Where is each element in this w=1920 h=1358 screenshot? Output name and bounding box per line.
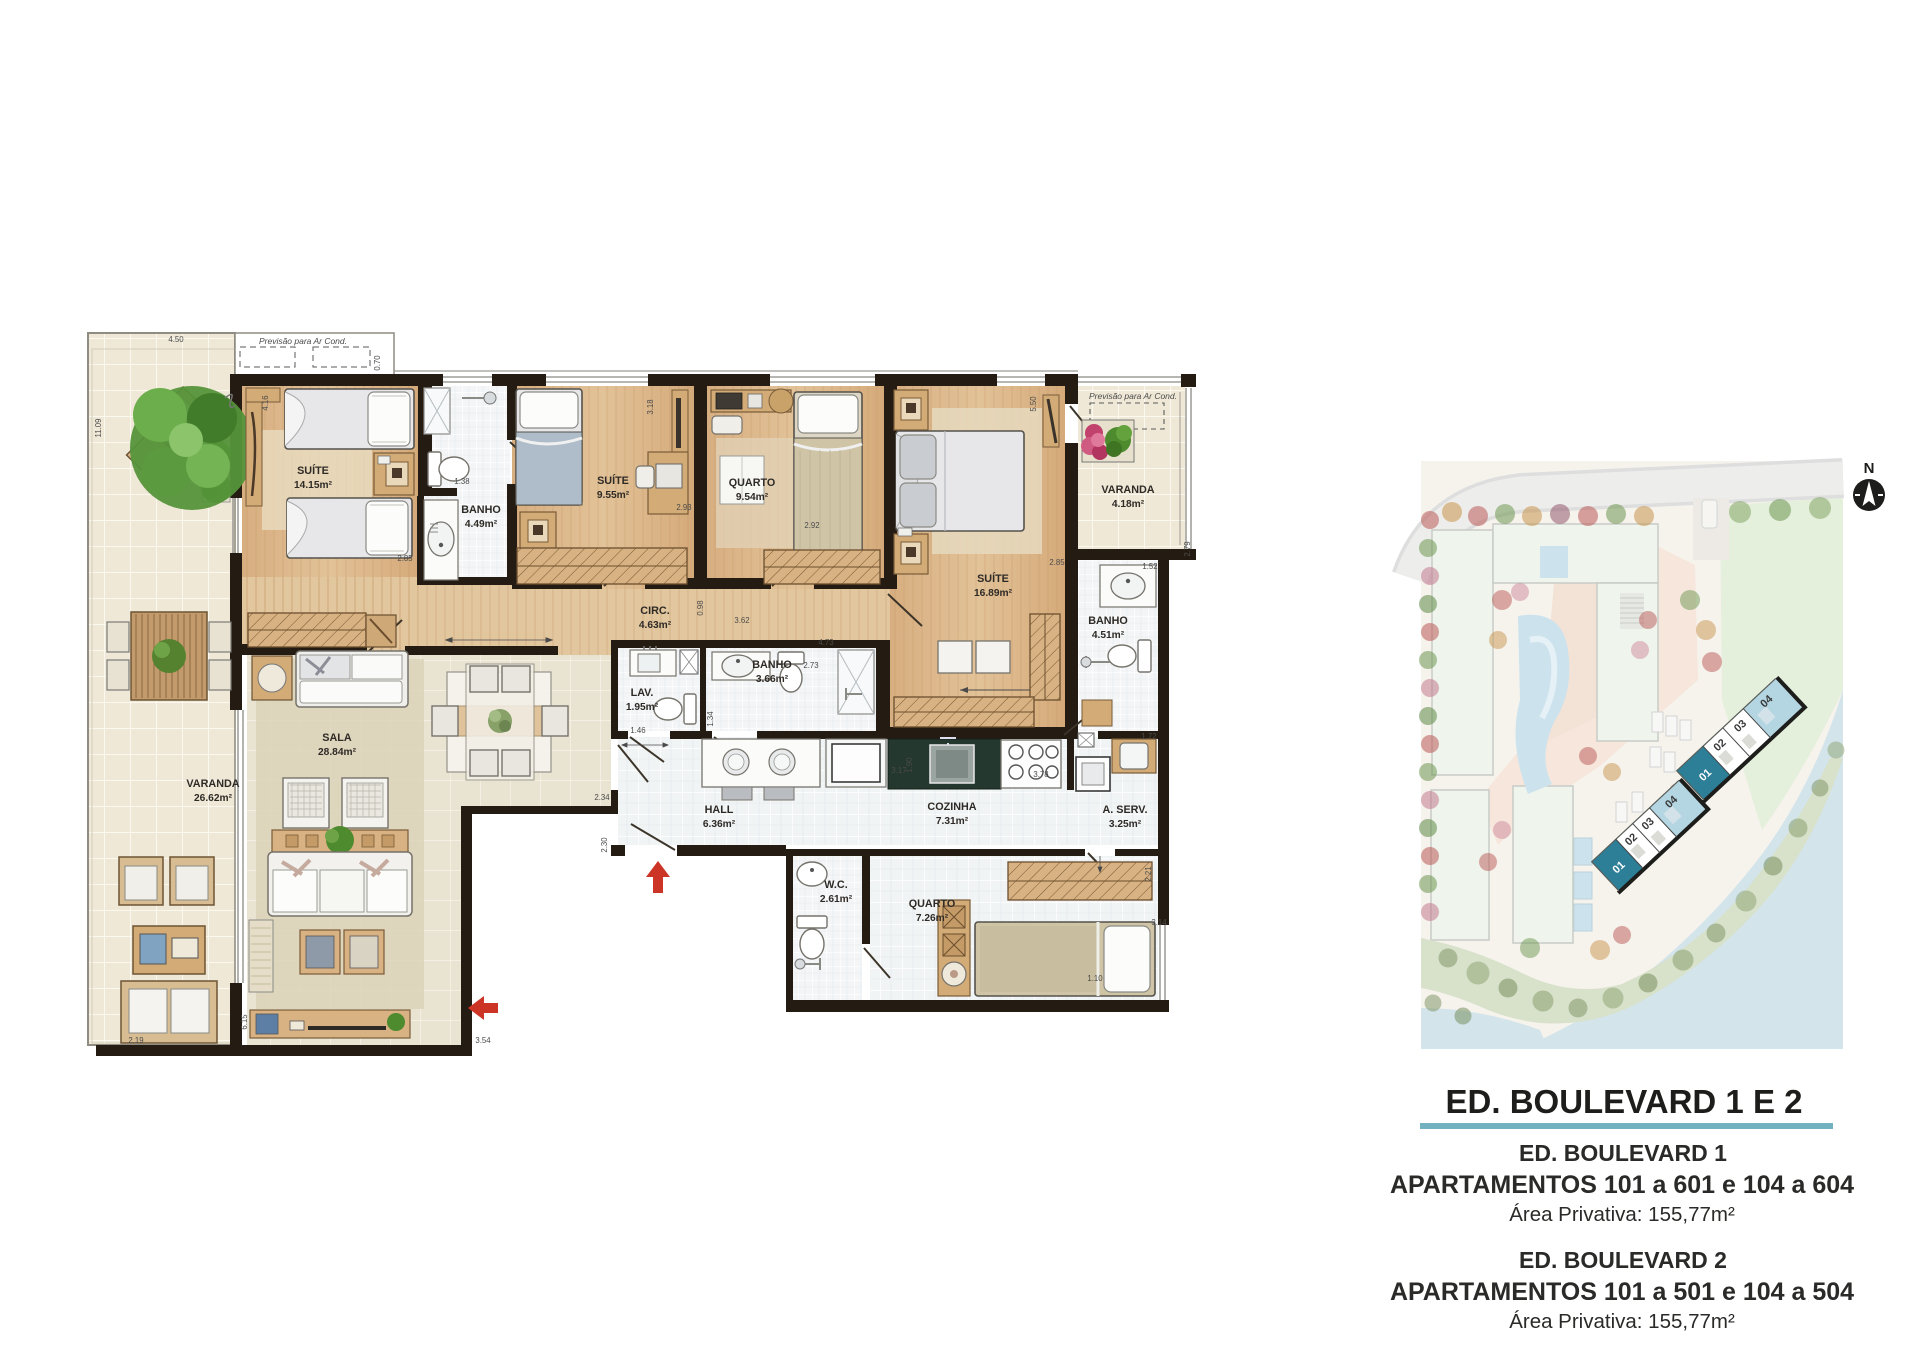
svg-text:5.50: 5.50	[1029, 396, 1038, 412]
svg-text:Previsão para Ar Cond.: Previsão para Ar Cond.	[259, 336, 347, 346]
svg-text:VARANDA: VARANDA	[1101, 484, 1154, 496]
svg-text:2.19: 2.19	[128, 1036, 143, 1045]
svg-text:1.10: 1.10	[1087, 974, 1103, 983]
svg-text:6.15: 6.15	[240, 1014, 249, 1030]
svg-text:3.54: 3.54	[475, 1036, 491, 1045]
svg-text:BANHO: BANHO	[752, 659, 792, 671]
svg-text:28.84m²: 28.84m²	[318, 747, 357, 758]
svg-text:COZINHA: COZINHA	[927, 801, 976, 813]
svg-text:SALA: SALA	[322, 732, 352, 744]
svg-text:0.98: 0.98	[696, 600, 705, 615]
svg-text:LAV.: LAV.	[631, 687, 654, 699]
svg-text:CIRC.: CIRC.	[640, 605, 669, 617]
svg-text:4.50: 4.50	[168, 335, 184, 344]
svg-text:7.31m²: 7.31m²	[936, 816, 969, 827]
svg-text:1.90: 1.90	[905, 757, 914, 773]
svg-text:N: N	[1864, 460, 1875, 477]
svg-text:QUARTO: QUARTO	[729, 477, 776, 489]
svg-text:2.79: 2.79	[1183, 541, 1192, 556]
svg-text:ED. BOULEVARD 1 E 2: ED. BOULEVARD 1 E 2	[1446, 1083, 1803, 1120]
svg-text:3.18: 3.18	[646, 399, 655, 414]
svg-text:SUÍTE: SUÍTE	[977, 572, 1009, 585]
svg-text:W.C.: W.C.	[824, 879, 847, 891]
svg-text:3.25m²: 3.25m²	[1109, 819, 1142, 830]
svg-text:ED. BOULEVARD 2: ED. BOULEVARD 2	[1519, 1247, 1727, 1273]
svg-text:4.51m²: 4.51m²	[1092, 630, 1125, 641]
svg-text:2.30: 2.30	[600, 837, 609, 853]
svg-text:2.85: 2.85	[1049, 558, 1065, 567]
svg-text:SUÍTE: SUÍTE	[297, 464, 329, 477]
svg-text:16.89m²: 16.89m²	[974, 588, 1013, 599]
svg-text:ED. BOULEVARD 1: ED. BOULEVARD 1	[1519, 1140, 1727, 1166]
svg-text:4.49m²: 4.49m²	[465, 519, 498, 530]
svg-text:2.92: 2.92	[804, 521, 819, 530]
svg-text:2.34: 2.34	[594, 793, 610, 802]
svg-text:1.52: 1.52	[1142, 562, 1157, 571]
svg-text:7.26m²: 7.26m²	[916, 913, 949, 924]
svg-text:VARANDA: VARANDA	[186, 778, 239, 790]
svg-text:3.66m²: 3.66m²	[756, 674, 789, 685]
svg-text:APARTAMENTOS 101 a 501 e 104 a: APARTAMENTOS 101 a 501 e 104 a 504	[1390, 1278, 1854, 1306]
svg-text:SUÍTE: SUÍTE	[597, 474, 629, 487]
svg-text:3.14: 3.14	[1151, 918, 1167, 927]
svg-text:1.72: 1.72	[1141, 732, 1156, 741]
svg-text:4.63m²: 4.63m²	[639, 620, 672, 631]
svg-text:9.54m²: 9.54m²	[736, 492, 769, 503]
svg-text:BANHO: BANHO	[461, 504, 501, 516]
svg-text:2.93: 2.93	[676, 503, 691, 512]
svg-text:A. SERV.: A. SERV.	[1102, 804, 1147, 816]
svg-text:1.95m²: 1.95m²	[626, 702, 659, 713]
svg-text:BANHO: BANHO	[1088, 615, 1128, 627]
svg-text:14.15m²: 14.15m²	[294, 480, 333, 491]
svg-text:4.18m²: 4.18m²	[1112, 499, 1145, 510]
svg-text:11.09: 11.09	[94, 419, 103, 438]
svg-text:1.38: 1.38	[454, 477, 469, 486]
svg-text:2.21: 2.21	[1144, 866, 1153, 881]
svg-text:0.70: 0.70	[373, 355, 382, 371]
svg-text:HALL: HALL	[705, 804, 734, 816]
svg-text:26.62m²: 26.62m²	[194, 793, 233, 804]
svg-text:1.46: 1.46	[630, 726, 645, 735]
svg-text:APARTAMENTOS 101 a 601 e 104 a: APARTAMENTOS 101 a 601 e 104 a 604	[1390, 1171, 1854, 1199]
svg-text:QUARTO: QUARTO	[909, 898, 956, 910]
svg-text:9.55m²: 9.55m²	[597, 490, 630, 501]
svg-text:Área Privativa: 155,77m²: Área Privativa: 155,77m²	[1509, 1310, 1735, 1333]
svg-text:2.73: 2.73	[803, 661, 818, 670]
svg-text:2.61m²: 2.61m²	[820, 894, 853, 905]
svg-text:3.62: 3.62	[734, 616, 749, 625]
svg-text:4.73: 4.73	[818, 638, 833, 647]
svg-text:1.34: 1.34	[706, 711, 715, 727]
svg-text:2.85: 2.85	[397, 554, 413, 563]
svg-text:Previsão para Ar Cond.: Previsão para Ar Cond.	[1089, 391, 1177, 401]
svg-text:Área Privativa: 155,77m²: Área Privativa: 155,77m²	[1509, 1203, 1735, 1226]
svg-text:3.78: 3.78	[1033, 770, 1048, 779]
svg-text:4.16: 4.16	[261, 395, 270, 410]
svg-text:6.36m²: 6.36m²	[703, 819, 736, 830]
